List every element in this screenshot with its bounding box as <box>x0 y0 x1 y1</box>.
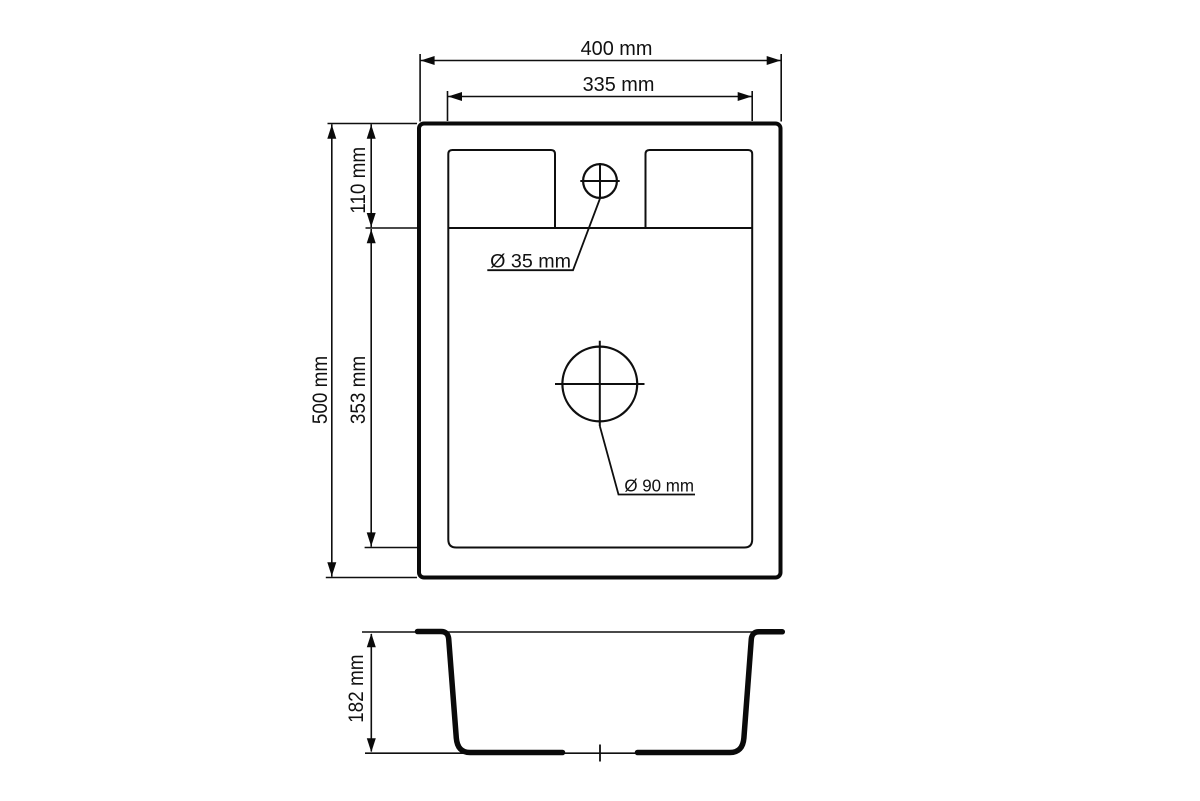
svg-text:182 mm: 182 mm <box>345 655 368 723</box>
svg-text:Ø 90 mm: Ø 90 mm <box>624 475 694 495</box>
svg-text:353 mm: 353 mm <box>347 356 370 424</box>
svg-text:400 mm: 400 mm <box>581 38 653 60</box>
svg-text:110 mm: 110 mm <box>347 147 370 214</box>
svg-text:335 mm: 335 mm <box>583 74 655 96</box>
svg-text:Ø 35 mm: Ø 35 mm <box>490 250 571 272</box>
svg-text:500 mm: 500 mm <box>309 356 332 424</box>
